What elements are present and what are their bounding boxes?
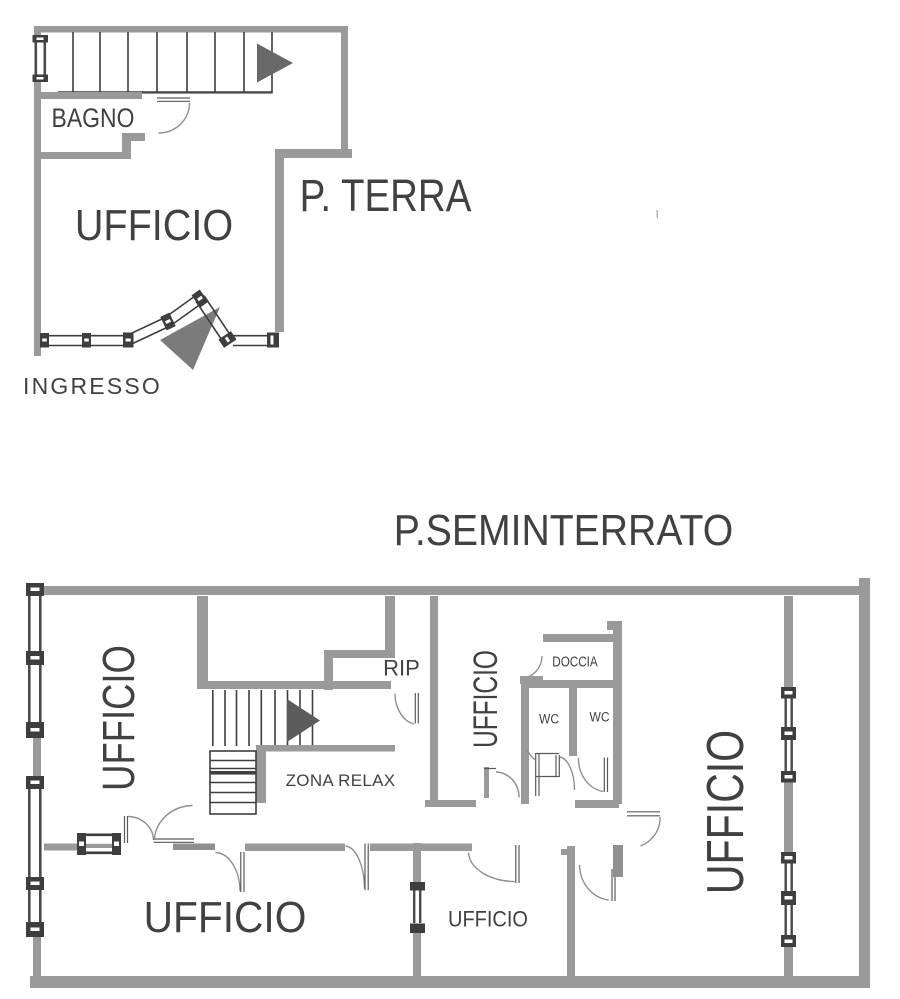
svg-text:UFFICIO: UFFICIO <box>467 650 505 748</box>
svg-text:INGRESSO: INGRESSO <box>23 373 162 399</box>
svg-text:RIP: RIP <box>383 656 420 681</box>
svg-text:WC: WC <box>589 709 609 725</box>
svg-text:ZONA RELAX: ZONA RELAX <box>286 771 396 790</box>
svg-text:P.SEMINTERRATO: P.SEMINTERRATO <box>394 505 733 555</box>
svg-text:WC: WC <box>539 711 559 727</box>
svg-text:P. TERRA: P. TERRA <box>300 170 472 221</box>
svg-text:UFFICIO: UFFICIO <box>93 645 144 791</box>
svg-text:UFFICIO: UFFICIO <box>448 908 528 932</box>
svg-text:UFFICIO: UFFICIO <box>75 200 233 249</box>
svg-text:DOCCIA: DOCCIA <box>552 653 597 670</box>
svg-text:UFFICIO: UFFICIO <box>144 893 307 942</box>
svg-text:UFFICIO: UFFICIO <box>696 730 754 894</box>
svg-text:BAGNO: BAGNO <box>52 103 135 133</box>
